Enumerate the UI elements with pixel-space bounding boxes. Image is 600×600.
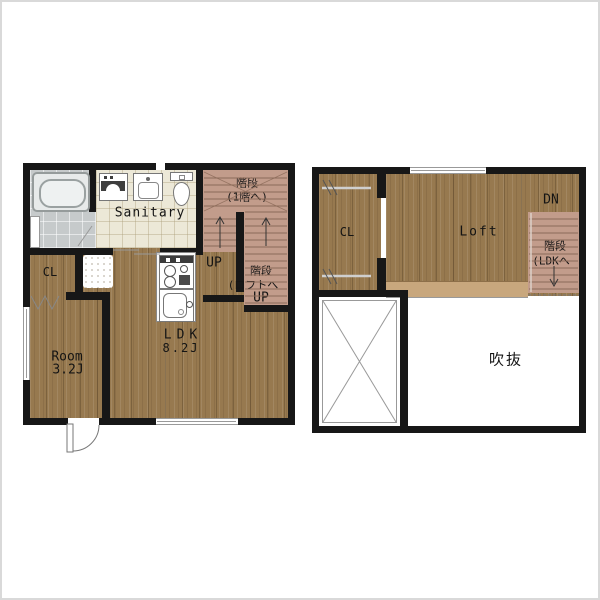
- label-ldk-size: 8.2J: [163, 342, 200, 354]
- wall-below-closet: [319, 290, 408, 297]
- entrance-door-gap: [68, 418, 99, 425]
- label-stairs-loft-2: (ロフトへ: [228, 280, 279, 291]
- label-stairs-ldk-2: (LDKへ: [532, 256, 570, 267]
- label-stairs-upper-1: 階段: [236, 178, 258, 189]
- room-west-window: [23, 307, 30, 380]
- toilet-tank: [170, 172, 193, 181]
- label-stairs-loft-1: 階段: [250, 266, 272, 277]
- kitchen-counter: [156, 252, 196, 322]
- label-up-hall: UP: [206, 257, 222, 270]
- vanity-sink: [133, 173, 163, 201]
- sanitary-wall-notch: [156, 163, 165, 170]
- washer-knob: [110, 176, 113, 179]
- floorplan-main: Sanitary 階段 (1階へ) UP 階段 (ロフトへ UP CL LDK …: [23, 163, 295, 425]
- label-up-loft: UP: [253, 292, 269, 305]
- open-void-box: [322, 300, 397, 423]
- label-sanitary: Sanitary: [115, 207, 186, 220]
- washer-knob: [104, 176, 107, 179]
- wall-under-landing: [203, 295, 244, 302]
- washer-panel: [101, 181, 125, 191]
- bathtub-basin: [39, 179, 86, 208]
- label-void: 吹抜: [489, 353, 523, 368]
- floorplan-loft: CL Loft DN 階段 (LDKへ 吹抜: [312, 167, 586, 433]
- label-room-size: 3.2J: [52, 364, 83, 377]
- wall-room-ldk: [102, 292, 110, 418]
- ldk-south-window: [156, 418, 238, 425]
- wall-sanitary-stairs: [196, 170, 203, 255]
- label-closet-right: CL: [340, 226, 354, 238]
- shower-counter: [30, 216, 40, 248]
- kitchen-sink: [159, 289, 194, 322]
- stairs-down-flight: [528, 212, 579, 293]
- label-stairs-upper-2: (1階へ): [226, 192, 268, 203]
- label-dn: DN: [543, 194, 559, 207]
- label-ldk-name: LDK: [164, 329, 202, 342]
- label-closet-left: CL: [43, 266, 57, 278]
- vanity-bowl: [138, 182, 159, 199]
- wall-under-loft-flight: [244, 305, 288, 312]
- label-stairs-ldk-1: 階段: [544, 241, 566, 252]
- loft-north-window: [410, 167, 486, 174]
- wall-bath-sanitary: [89, 170, 96, 212]
- vanity-faucet: [146, 177, 150, 181]
- bathtub: [32, 172, 90, 212]
- wall-closet-loft-north: [377, 174, 386, 198]
- floorplan-page: { "colors": { "wall": "#171717", "wood":…: [0, 0, 600, 600]
- entrance-door-icon: [67, 424, 99, 452]
- washing-machine: [99, 173, 128, 201]
- wall-sanitary-south-a: [30, 248, 113, 255]
- stairs-landing-flight: [203, 212, 237, 252]
- washer-pan-mat: [83, 255, 113, 288]
- label-loft: Loft: [459, 226, 498, 239]
- wall-void-east: [400, 290, 408, 426]
- gas-stove: [159, 255, 194, 289]
